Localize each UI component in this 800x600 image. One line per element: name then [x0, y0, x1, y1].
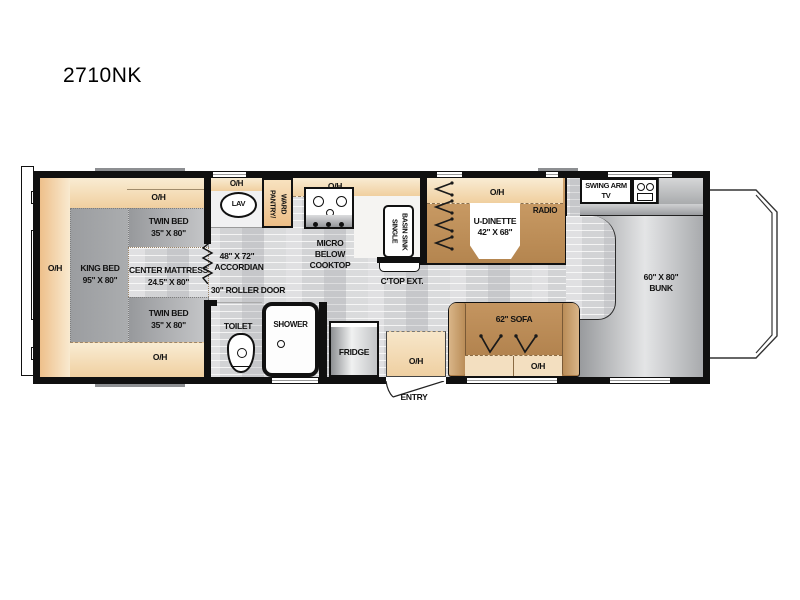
lav-label: LAV: [222, 200, 255, 209]
dinette-size-label: 42" X 68": [470, 227, 520, 237]
shower: SHOWER: [262, 302, 319, 377]
seatbelt-icon: [431, 199, 455, 215]
center-mattress: CENTER MATTRESS 24.5" X 80": [128, 247, 209, 299]
radio-label: RADIO: [525, 206, 565, 215]
toilet-base-line: [231, 366, 251, 368]
knob-icon: [339, 222, 344, 227]
bedroom-oh-left-label: O/H: [40, 263, 70, 273]
swing-arm-tv: SWING ARM TV: [580, 178, 632, 204]
sink-label-line2: BASIN SINK: [399, 209, 407, 254]
micro-below-label-line3: COOKTOP: [297, 260, 363, 270]
shower-drain-icon: [277, 340, 285, 348]
tv-cabinet-face: [580, 204, 703, 216]
console-dial-icon: [646, 183, 654, 191]
knob-icon: [326, 222, 331, 227]
bedroom-cabinet-edge: [127, 189, 207, 190]
cab-side-cabinet: [658, 178, 704, 204]
twin-bed-label: TWIN BED: [129, 216, 208, 226]
micro-below-label-line1: MICRO: [297, 238, 363, 248]
lav-oh-label: O/H: [211, 179, 262, 188]
twin-bed-size: 35" X 80": [129, 320, 208, 330]
sofa-oh-label: O/H: [514, 361, 562, 371]
toilet-drain-icon: [237, 348, 247, 358]
seatbelt-icon: [431, 181, 455, 197]
king-bed: KING BED 95" X 80": [70, 208, 130, 344]
countertop-extension-label: C'TOP EXT.: [372, 276, 432, 286]
dinette-area: O/H U-DINETTE 42" X 68" RADIO: [427, 178, 567, 265]
cooktop-front-panel: [306, 215, 352, 227]
seatbelt-icon: [512, 333, 540, 355]
console-dial-icon: [637, 183, 645, 191]
sink-label-line1: SINGLE: [389, 209, 397, 254]
dinette-label: U-DINETTE: [462, 216, 528, 226]
bath-wall-left: [204, 300, 211, 377]
roller-door-opening: [217, 302, 262, 303]
window: [272, 378, 318, 383]
toilet-label: TOILET: [214, 321, 262, 331]
micro-below-label-line2: BELOW: [297, 249, 363, 259]
dinette-table: U-DINETTE 42" X 68": [470, 203, 520, 259]
awning-marker: [538, 168, 578, 171]
window: [546, 172, 558, 177]
sofa: 62" SOFA O/H: [448, 302, 580, 377]
bedroom-oh-left-cabinet: [40, 178, 71, 377]
burner-icon: [313, 196, 324, 207]
roller-door-label: 30" ROLLER DOOR: [207, 285, 289, 295]
accordion-label: ACCORDIAN: [210, 262, 268, 272]
cab-hood-outline: [706, 186, 782, 362]
shower-wall-right: [319, 302, 327, 377]
twin-bed-bottom: TWIN BED 35" X 80": [128, 297, 209, 344]
bedroom-partition-wall: [204, 178, 211, 244]
entry-oh-cabinet: O/H: [386, 331, 446, 377]
cab-console: [632, 178, 658, 204]
awning-marker: [95, 168, 185, 172]
fridge: FRIDGE: [329, 321, 379, 377]
bath-wall-corner: [204, 300, 217, 306]
bunk-label: BUNK: [618, 283, 704, 293]
tv-label-line1: SWING ARM: [582, 182, 630, 191]
cooktop: [304, 187, 354, 229]
seatbelt-icon: [431, 235, 455, 251]
window: [213, 172, 246, 177]
burner-icon: [336, 196, 347, 207]
page-title: 2710NK: [63, 64, 142, 89]
seatbelt-icon: [477, 333, 505, 355]
dinette-wall: [420, 178, 427, 265]
tv-label-line2: TV: [582, 192, 630, 201]
sofa-label: 62" SOFA: [469, 314, 559, 324]
sofa-armrest: [449, 303, 466, 375]
accordion-size-label: 48" X 72": [213, 251, 261, 261]
window: [610, 378, 670, 383]
wall-left: [33, 171, 40, 384]
fridge-top-trim: [331, 323, 377, 327]
floorplan-canvas: 2710NK O/H O/H KING BED 95" X 80" TWIN B…: [0, 0, 800, 600]
twin-bed-size: 35" X 80": [129, 228, 208, 238]
seatbelt-icon: [431, 217, 455, 233]
awning-marker: [95, 384, 185, 388]
king-bed-size: 95" X 80": [71, 275, 129, 285]
fridge-label: FRIDGE: [331, 347, 377, 357]
lav-sink: LAV: [220, 192, 257, 218]
kitchen-sink: SINGLE BASIN SINK: [383, 205, 414, 258]
countertop-extension: [379, 263, 420, 272]
window: [608, 172, 672, 177]
dinette-oh-label: O/H: [447, 187, 547, 197]
console-vent-icon: [637, 193, 653, 201]
window: [437, 172, 462, 177]
king-bed-label: KING BED: [71, 263, 129, 273]
twin-bed-label: TWIN BED: [129, 308, 208, 318]
wall-right: [703, 171, 710, 384]
bedroom-oh-top-label: O/H: [110, 192, 207, 202]
twin-bed-top: TWIN BED 35" X 80": [128, 208, 209, 249]
sofa-base: O/H: [465, 355, 562, 376]
shower-label: SHOWER: [266, 320, 315, 329]
entry-oh-label: O/H: [387, 356, 445, 366]
entry-label: ENTRY: [386, 392, 442, 402]
pantry-label-line1: PANTRY/: [267, 182, 275, 226]
knob-icon: [313, 222, 318, 227]
center-mattress-size: 24.5" X 80": [129, 277, 208, 287]
window: [467, 378, 557, 383]
sofa-armrest: [562, 303, 579, 375]
bunk-size-label: 60" X 80": [618, 272, 704, 282]
pantry-cabinet: PANTRY/ WARD: [262, 178, 293, 228]
pantry-label-line2: WARD: [278, 182, 286, 226]
